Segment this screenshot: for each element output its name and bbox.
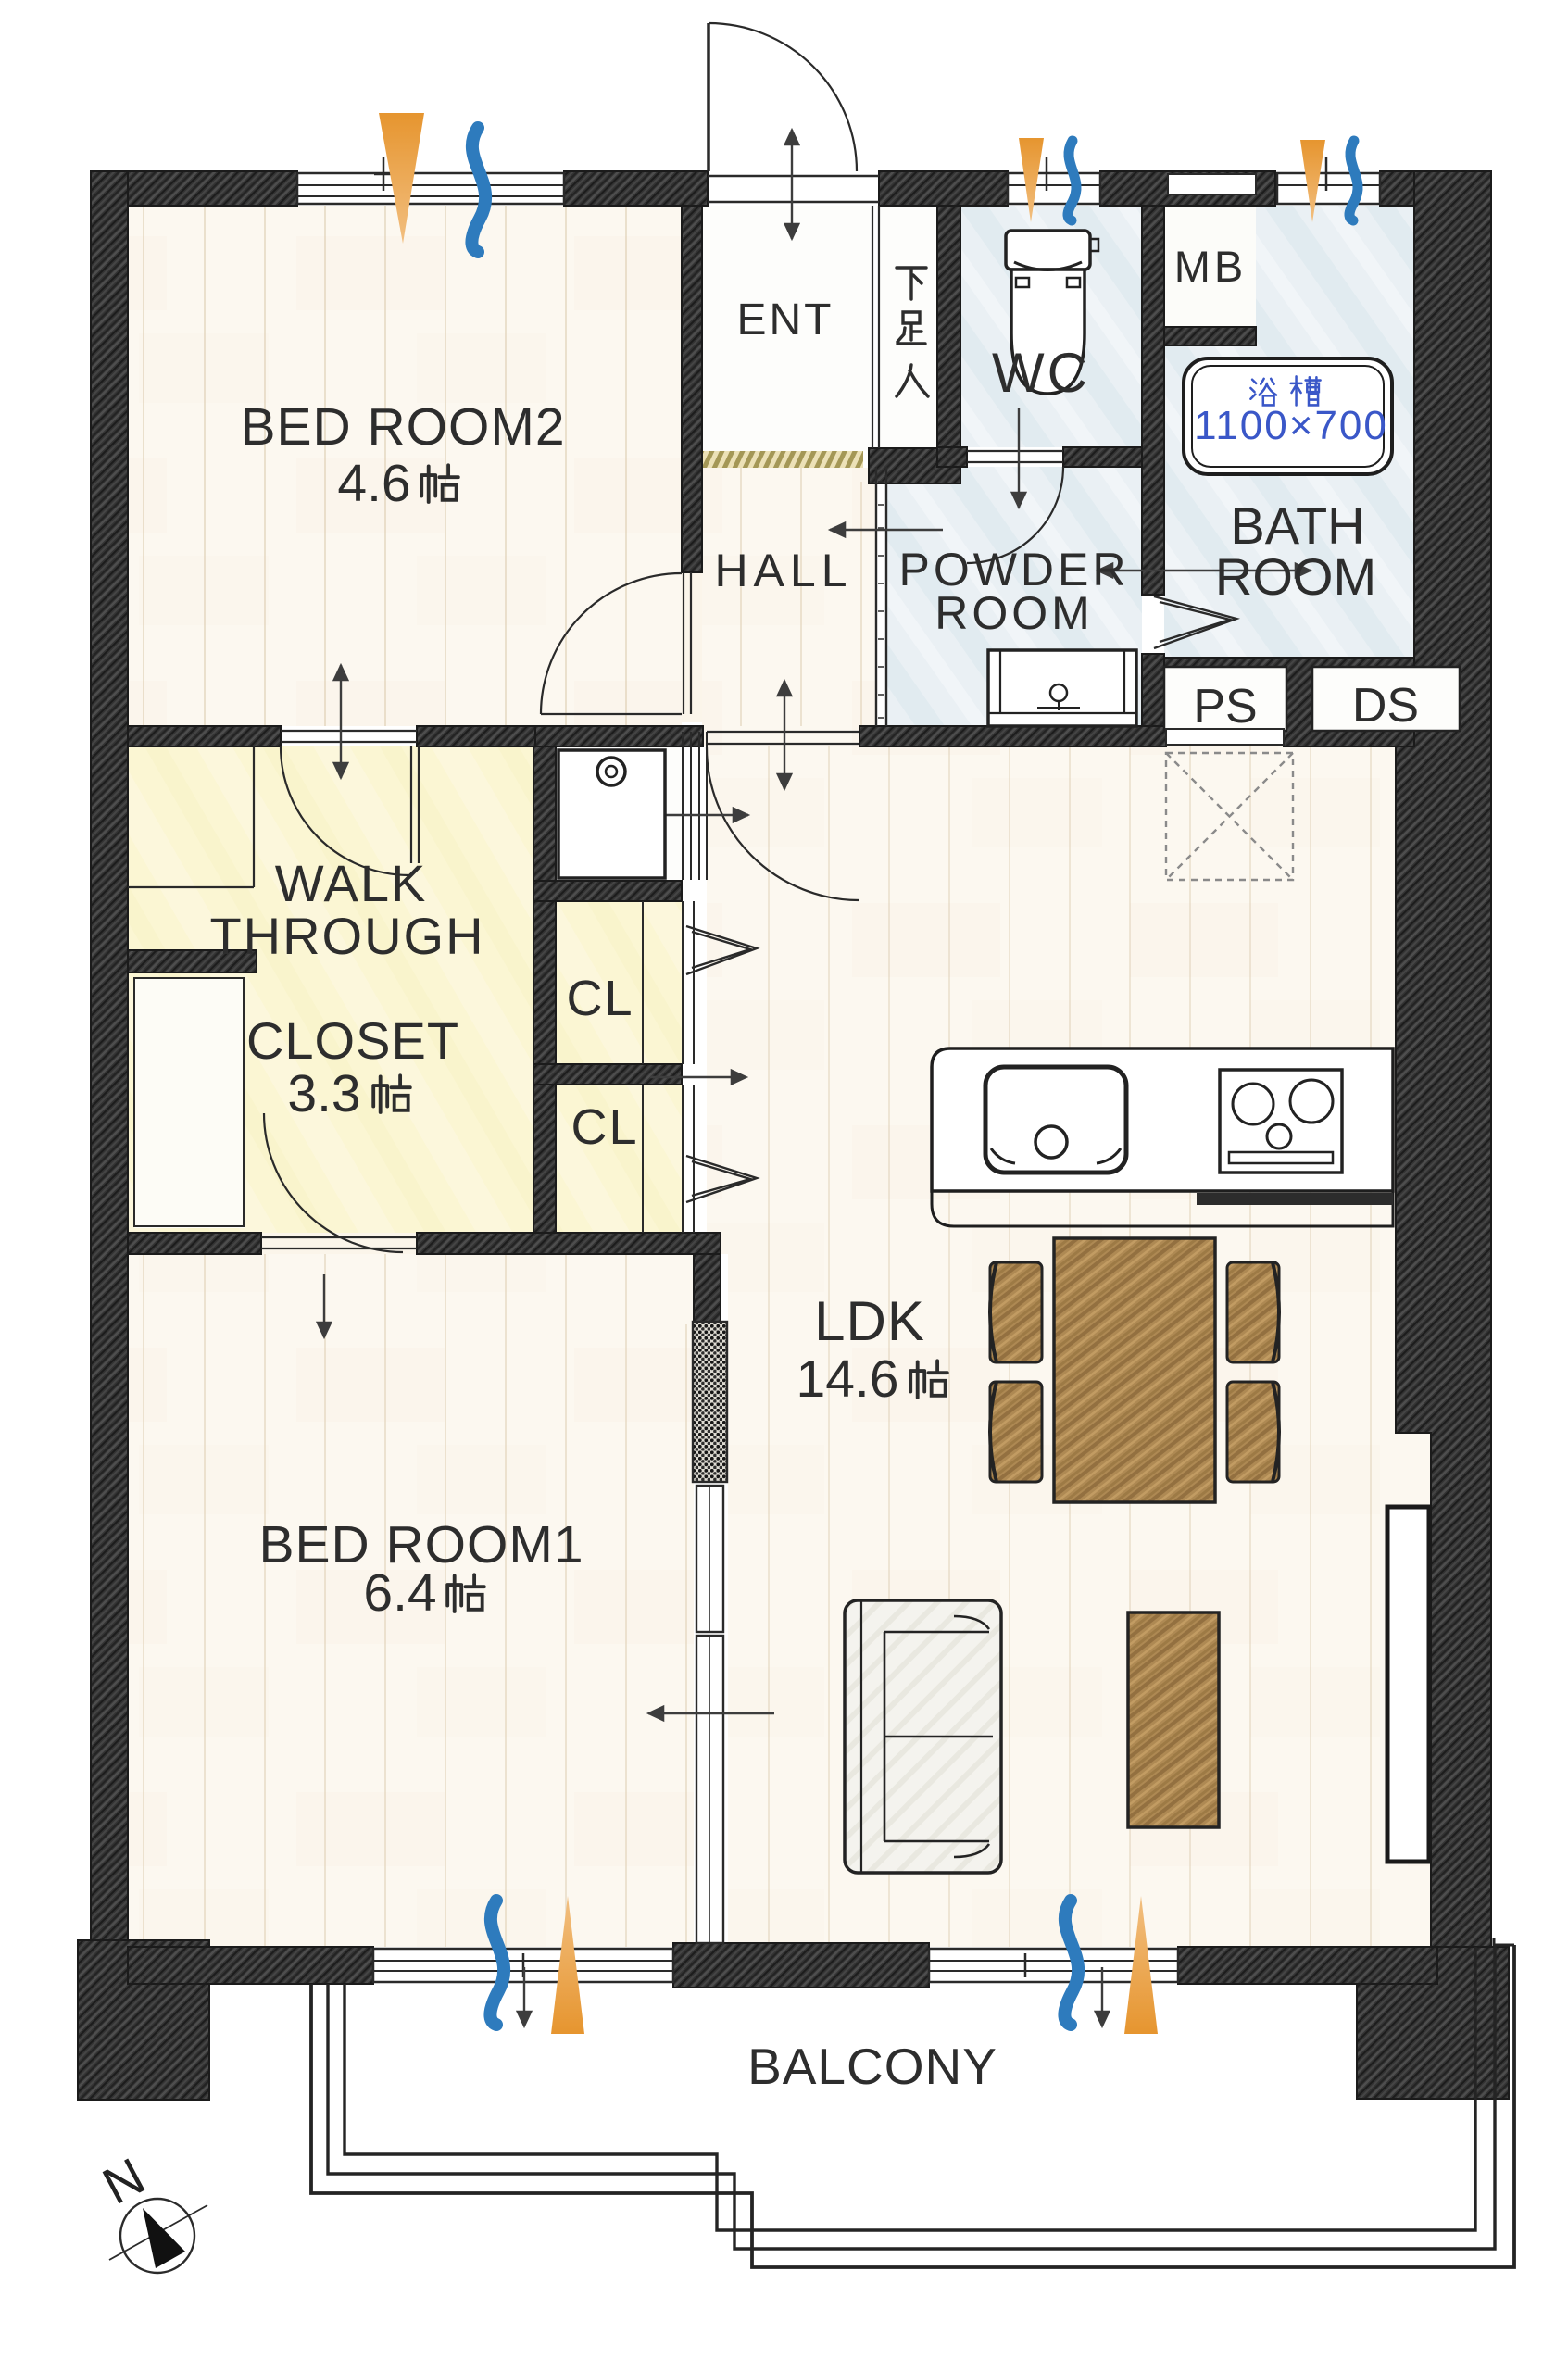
svg-text:MB: MB — [1174, 242, 1248, 291]
svg-text:DS: DS — [1352, 679, 1419, 733]
svg-text:THROUGH: THROUGH — [209, 907, 484, 965]
svg-text:CL: CL — [566, 971, 633, 1026]
svg-text:ENT: ENT — [737, 295, 834, 345]
svg-text:WALK: WALK — [275, 854, 428, 912]
svg-text:3.3: 3.3 — [287, 1064, 360, 1123]
svg-text:LDK: LDK — [814, 1290, 925, 1352]
svg-text:14.6: 14.6 — [797, 1349, 899, 1409]
svg-text:PS: PS — [1193, 680, 1257, 734]
svg-text:ROOM: ROOM — [1215, 547, 1376, 606]
svg-text:ROOM: ROOM — [935, 587, 1094, 639]
svg-text:HALL: HALL — [714, 545, 852, 596]
svg-text:CL: CL — [571, 1099, 638, 1155]
svg-text:BALCONY: BALCONY — [747, 2038, 997, 2095]
svg-text:BED ROOM2: BED ROOM2 — [240, 397, 565, 457]
svg-text:CLOSET: CLOSET — [246, 1011, 459, 1070]
svg-text:WC: WC — [992, 342, 1090, 404]
svg-text:4.6: 4.6 — [337, 454, 410, 513]
svg-text:1100×700: 1100×700 — [1194, 403, 1388, 448]
svg-text:BATH: BATH — [1230, 496, 1364, 555]
svg-text:6.4: 6.4 — [363, 1563, 436, 1623]
